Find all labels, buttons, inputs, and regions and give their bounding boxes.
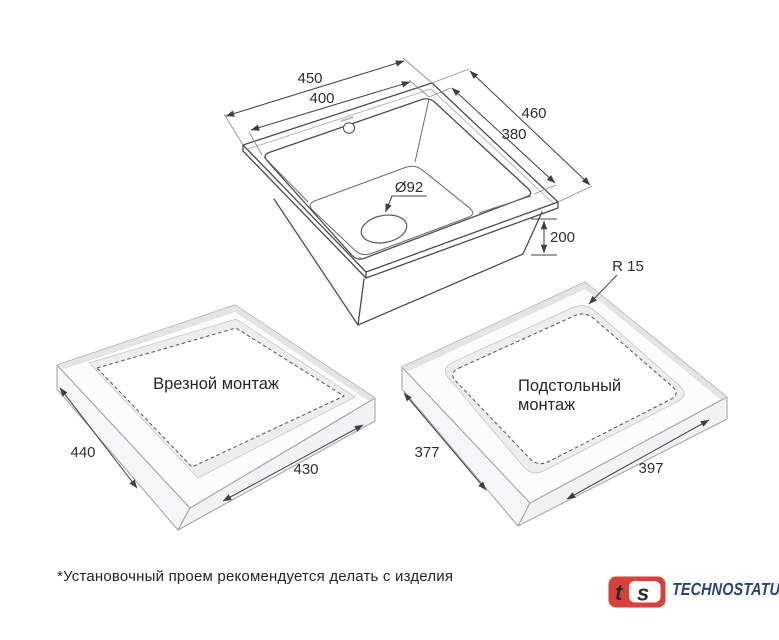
- dim-377-label: 377: [414, 444, 439, 461]
- faucet-hole: [343, 123, 354, 133]
- dim-460-label: 460: [521, 105, 546, 122]
- dim-r15-label: R 15: [612, 258, 644, 275]
- drain-hole: [359, 211, 409, 246]
- dim-397-label: 397: [638, 460, 663, 477]
- under-mount-diagram: Подстольный монтаж R 15 377 397: [402, 258, 727, 526]
- sink-isometric-view: 450 400 460 380 200 Ø92: [224, 58, 592, 325]
- sink-rim-lip: [243, 145, 558, 278]
- installation-diagram: 450 400 460 380 200 Ø92 Врезной монтаж 4…: [0, 0, 779, 640]
- dim-440-label: 440: [70, 444, 95, 461]
- under-caption-line2: монтаж: [518, 396, 575, 414]
- dim-460-line: [470, 71, 590, 185]
- sink-rim-face: [243, 83, 558, 272]
- brand-wordmark: TECHNOSTATUS: [672, 579, 779, 600]
- under-caption-line1: Подстольный: [518, 377, 621, 395]
- ext-400: [249, 80, 429, 155]
- ts-monogram-icon: t s: [608, 576, 666, 608]
- dim-430-label: 430: [293, 461, 318, 478]
- dim-drain-leader: [386, 196, 428, 212]
- dim-400-label: 400: [309, 90, 334, 107]
- technostatus-logo: t s TECHNOSTATUS: [608, 576, 773, 610]
- dim-450-label: 450: [297, 70, 322, 87]
- drop-in-mount-diagram: Врезной монтаж 440 430: [57, 305, 375, 530]
- dropin-caption: Врезной монтаж: [153, 375, 279, 393]
- footnote: *Установочный проем рекомендуется делать…: [57, 568, 453, 585]
- monogram-s: s: [637, 581, 649, 606]
- dim-380-label: 380: [501, 126, 526, 143]
- dim-200-label: 200: [550, 229, 575, 246]
- dim-drain-label: Ø92: [395, 179, 423, 196]
